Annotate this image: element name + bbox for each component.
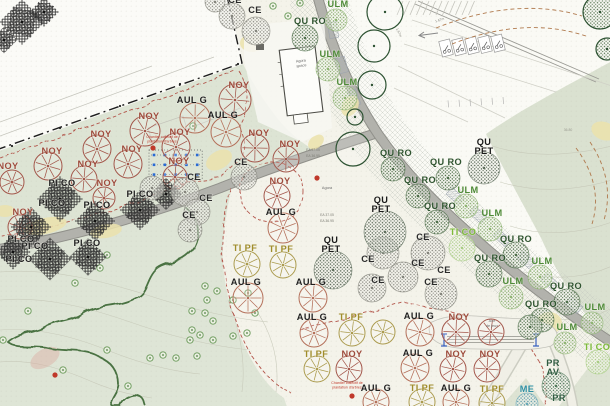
tree-symbol-qu_pet: [468, 152, 500, 184]
tree-symbol-noy: [442, 318, 470, 346]
species-label-aul_g: AUL G: [403, 348, 433, 358]
species-label-noy: NOY: [96, 178, 117, 188]
species-label-qu_ro: QU RO: [380, 148, 412, 158]
species-label-pr_av: PRAV: [546, 358, 560, 377]
species-label-ti_co: TI CO: [450, 227, 477, 237]
species-label-ti_pf: TI PF: [269, 244, 293, 254]
species-label-pr: PR: [552, 393, 566, 403]
shrub-symbol: [60, 367, 66, 373]
species-label-noy: NOY: [445, 349, 466, 359]
species-label-ce: CE: [424, 277, 438, 287]
annotation-text: EA 36.95: [306, 154, 320, 158]
species-label-noy: NOY: [12, 207, 33, 217]
species-label-aul_g: AUL G: [404, 311, 434, 321]
species-label-pi_co: PI CO: [38, 198, 65, 208]
tree-symbol-ulm: [528, 265, 552, 289]
tree-symbol-ce: [231, 164, 257, 190]
species-label-ce: CE: [361, 254, 375, 264]
tree-symbol-aul_g: [211, 117, 241, 147]
shrub-symbol: [214, 288, 220, 294]
species-label-ce: CE: [228, 0, 242, 5]
existing-tree-symbol: [358, 30, 390, 62]
site-plan-svg: NOYNOYNOYNOYNOYNOYNOYNOYNOYNOYNOYNOYNOYN…: [0, 0, 610, 406]
annotation-text: Chantier collectif deplantation d'arbres: [146, 135, 178, 144]
annotation-text: EA 37.05: [306, 148, 320, 152]
tree-symbol-qu_ro: [436, 166, 460, 190]
species-label-pi_co: PI CO: [5, 254, 32, 264]
species-label-ce: CE: [199, 193, 213, 203]
shrub-symbol: [147, 355, 153, 361]
tree-symbol-aul_g: [401, 354, 429, 382]
tree-symbol-aul_g: [300, 319, 328, 347]
species-label-noy: NOY: [248, 128, 269, 138]
species-label-noy: NOY: [121, 144, 142, 154]
species-label-aul_g: AUL G: [177, 95, 207, 105]
survey-dot: [179, 83, 181, 85]
shrub-symbol: [285, 13, 291, 19]
tree-symbol-ulm: [478, 217, 502, 241]
shrub-symbol: [187, 337, 193, 343]
tree-symbol-qu_ro: [425, 210, 449, 234]
species-label-ulm: ULM: [502, 276, 523, 286]
species-label-me: ME: [520, 384, 535, 394]
annotation-text: Agora: [322, 186, 333, 190]
tree-symbol-ti_pf: [234, 251, 260, 277]
shrub-symbol: [160, 352, 166, 358]
tree-symbol-aul_g: [233, 283, 263, 313]
species-label-ulm: ULM: [319, 49, 340, 59]
species-label-qu_ro: QU RO: [474, 253, 506, 263]
survey-dot: [237, 63, 239, 65]
species-label-aul_g: AUL G: [208, 110, 238, 120]
landscape-plan-canvas: NOYNOYNOYNOYNOYNOYNOYNOYNOYNOYNOYNOYNOYN…: [0, 0, 610, 406]
shrub-symbol: [270, 3, 276, 9]
blue-grid-dot: [164, 164, 167, 167]
tree-symbol-noy: [114, 150, 142, 178]
species-label-qu_ro: QU RO: [525, 299, 557, 309]
species-label-pi_co: PI CO: [21, 241, 48, 251]
annotation-text: EA 37.05: [320, 213, 334, 217]
species-label-pi_co: PI CO: [48, 178, 75, 188]
species-label-ti_co: TI CO: [584, 342, 610, 352]
shrub-symbol: [297, 0, 303, 6]
tree-symbol-qu_ro: [381, 157, 405, 181]
tree-symbol-noy: [34, 152, 62, 180]
tree-symbol-qu_pet: [364, 211, 406, 253]
species-label-pi_co: PI CO: [83, 200, 110, 210]
species-label-aul_g: AUL G: [231, 277, 261, 287]
survey-dot: [59, 127, 61, 129]
species-label-qu_ro: QU RO: [424, 201, 456, 211]
red-dot-marker: [349, 393, 354, 398]
shrub-symbol: [189, 308, 195, 314]
shrub-symbol: [210, 318, 216, 324]
tree-symbol-ti_co: [586, 350, 610, 374]
tree-symbol-noy: [474, 356, 500, 382]
species-label-ti_pf: TI PF: [233, 243, 257, 253]
species-label-qu_ro: QU RO: [294, 16, 326, 26]
tree-symbol-noy: [264, 183, 290, 209]
tree-symbol-ulm: [554, 332, 576, 354]
species-label-ulm: ULM: [327, 0, 348, 9]
species-label-ce: CE: [187, 172, 201, 182]
species-label-noy: NOY: [479, 349, 500, 359]
species-label-qu_ro: QU RO: [430, 157, 462, 167]
blue-grid-dot: [153, 164, 156, 167]
shrub-symbol: [189, 327, 195, 333]
tree-symbol-noy: [336, 356, 362, 382]
tree-symbol-qu_ro: [518, 315, 542, 339]
shrub-symbol: [72, 280, 78, 286]
tree-symbol-noy: [0, 170, 24, 194]
species-label-ce: CE: [437, 265, 451, 275]
species-label-ti_pf: TI PF: [304, 349, 328, 359]
tree-symbol-ulm: [499, 285, 523, 309]
tree-symbol-ti_co: [449, 235, 475, 261]
species-label-pi_co: PI CO: [126, 189, 153, 199]
blue-grid-dot: [196, 164, 199, 167]
species-label-noy: NOY: [448, 312, 469, 322]
species-label-ulm: ULM: [556, 322, 577, 332]
shrub-symbol: [244, 330, 250, 336]
species-label-qu_ro: QU RO: [550, 281, 582, 291]
annotation-text: EA 36.95: [320, 219, 334, 223]
existing-tree-symbol: [367, 0, 403, 30]
species-label-ulm: ULM: [584, 302, 605, 312]
tree-symbol-aul_g: [268, 213, 298, 243]
tree-symbol-qu_ro: [292, 25, 318, 51]
tree-symbol-qu_ro: [476, 261, 502, 287]
red-dot-marker: [52, 372, 57, 377]
tree-symbol-ti_pf: [339, 320, 365, 346]
species-label-qu_ro: QU RO: [404, 175, 436, 185]
species-label-qu_pet: QUPET: [321, 235, 340, 254]
survey-dot: [11, 145, 13, 147]
species-label-aul_g: AUL G: [296, 277, 326, 287]
shrub-symbol: [210, 337, 216, 343]
species-label-aul_g: AUL G: [266, 207, 296, 217]
shrub-symbol: [197, 332, 203, 338]
annotation-text: 36.80: [564, 128, 573, 132]
existing-tree-symbol: [347, 109, 363, 125]
species-label-noy: NOY: [90, 129, 111, 139]
species-label-ulm: ULM: [531, 256, 552, 266]
species-label-ce: CE: [371, 275, 385, 285]
species-label-noy: NOY: [77, 159, 98, 169]
tree-symbol-ulm: [333, 86, 357, 110]
species-label-qu_pet: QUPET: [474, 137, 493, 156]
tree-symbol-ti_pf: [270, 252, 296, 278]
red-dot-marker: [150, 145, 155, 150]
species-label-ti_pf: TI PF: [410, 383, 434, 393]
tree-symbol-ti_pf: [371, 320, 395, 344]
blue-grid-dot: [196, 154, 199, 157]
species-label-noy: NOY: [138, 111, 159, 121]
species-label-noy: NOY: [341, 349, 362, 359]
existing-tree-symbol: [358, 71, 386, 99]
species-label-noy: NOY: [0, 161, 19, 171]
tree-symbol-ce: [178, 218, 202, 242]
tree-symbol-aul_g: [406, 318, 434, 346]
shrub-symbol: [25, 308, 31, 314]
tree-symbol-ulm: [325, 9, 347, 31]
species-label-noy: NOY: [228, 80, 249, 90]
tree-symbol-ce: [242, 17, 270, 45]
tree-symbol-ulm: [454, 194, 478, 218]
species-label-aul_g: AUL G: [441, 383, 471, 393]
red-dot-marker: [314, 175, 319, 180]
tree-symbol-ulm: [581, 312, 603, 334]
shrub-symbol: [230, 333, 236, 339]
shrub-symbol: [104, 347, 110, 353]
species-label-qu_ro: QU RO: [500, 234, 532, 244]
tree-symbol-ti_pf: [304, 356, 330, 382]
annotation-text: Agoraspace: [296, 58, 308, 68]
species-label-ulm: ULM: [481, 208, 502, 218]
shrub-symbol: [0, 337, 6, 343]
shrub-symbol: [204, 297, 210, 303]
shrub-symbol: [202, 310, 208, 316]
shrub-symbol: [194, 353, 200, 359]
species-label-noy: NOY: [269, 176, 290, 186]
species-label-ce: CE: [182, 210, 196, 220]
shrub-symbol: [125, 383, 131, 389]
tree-symbol-qu_ro: [554, 289, 580, 315]
tree-symbol-aul_g: [299, 284, 327, 312]
species-label-aul_g: AUL G: [297, 312, 327, 322]
species-label-noy: NOY: [41, 146, 62, 156]
survey-dot: [119, 105, 121, 107]
species-label-aul_g: AUL G: [361, 383, 391, 393]
species-label-ulm: ULM: [336, 77, 357, 87]
building-outline: [279, 46, 323, 116]
species-label-ti_pf: TI PF: [480, 384, 504, 394]
species-label-ce: CE: [411, 258, 425, 268]
species-label-ce: CE: [416, 232, 430, 242]
species-label-ulm: ULM: [457, 185, 478, 195]
species-label-qu_pet: QUPET: [371, 195, 390, 214]
tree-symbol-noy: [440, 356, 466, 382]
blue-grid-dot: [153, 173, 156, 176]
shrub-symbol: [173, 355, 179, 361]
existing-tree-symbol: [336, 132, 370, 166]
blue-grid-dot: [153, 154, 156, 157]
building-annex: [293, 113, 308, 124]
species-label-noy: NOY: [279, 139, 300, 149]
tree-symbol-qu_ro: [503, 242, 529, 268]
species-label-noy: NOY: [168, 156, 189, 166]
species-label-ti_pf: TI PF: [339, 312, 363, 322]
shrub-symbol: [202, 283, 208, 289]
species-label-ce: CE: [234, 157, 248, 167]
tree-symbol-noy: [273, 146, 299, 172]
annotation-text: Chantier collectif deplantation d'arbres: [331, 381, 363, 390]
species-label-pi_co: PI CO: [73, 238, 100, 248]
species-label-ce: CE: [248, 5, 262, 15]
